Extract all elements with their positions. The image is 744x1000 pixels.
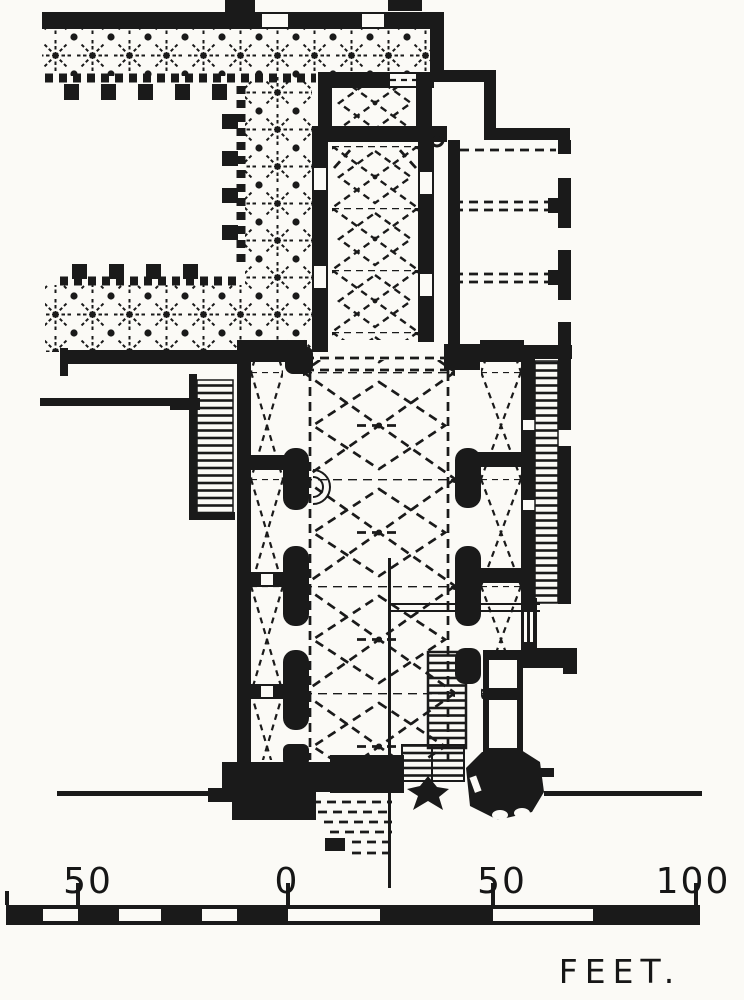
east-stair-strip — [535, 361, 558, 603]
door-marker — [325, 838, 345, 851]
chapel-room — [489, 700, 517, 748]
floor-plan-drawing: 50 0 50 100 FEET. — [0, 0, 744, 1000]
chapel-room — [489, 660, 517, 688]
cloister-north-walk-vault — [42, 29, 434, 76]
scale-bar: 50 0 50 100 FEET. — [5, 861, 730, 991]
window — [558, 154, 571, 178]
west-stair-strip — [197, 380, 233, 514]
nave-south-wall — [521, 352, 535, 604]
scale-label-100: 100 — [656, 861, 731, 902]
nave-north-wall — [237, 352, 251, 764]
garth-buttresses — [64, 84, 238, 279]
chancel-vault — [332, 146, 418, 340]
chancel — [312, 126, 447, 352]
west-building-wall — [40, 398, 192, 406]
porch-steps — [312, 802, 392, 832]
buttress — [225, 0, 255, 13]
window — [558, 430, 571, 446]
window — [558, 228, 571, 250]
scale-label-50-left: 50 — [63, 861, 113, 902]
grand-stair — [428, 652, 466, 748]
plan-figure: 50 0 50 100 FEET. — [0, 0, 744, 1000]
window — [558, 300, 571, 322]
west-front — [57, 755, 702, 853]
scale-unit-label: FEET. — [559, 952, 681, 991]
north-aisle-vault — [251, 360, 283, 760]
cloister-south-walk-vault — [45, 285, 245, 352]
ground-line-west — [57, 791, 208, 796]
cloister-west-walk-vault — [245, 76, 312, 352]
ground-line-east — [544, 791, 702, 796]
scale-bar-divisions — [43, 909, 593, 921]
scale-label-50-right: 50 — [477, 861, 527, 902]
scale-label-0: 0 — [275, 861, 300, 902]
buttress — [388, 0, 422, 11]
section-line-vertical — [388, 558, 391, 888]
cloister-south-wall — [66, 350, 238, 364]
